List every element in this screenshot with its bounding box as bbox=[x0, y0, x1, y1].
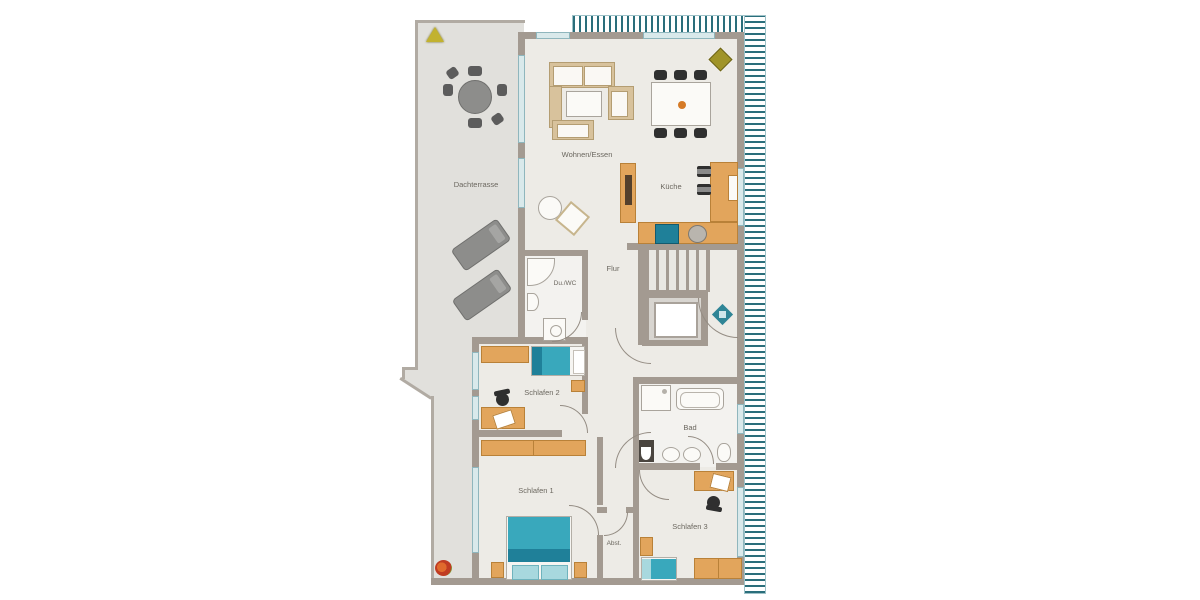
room-label-flur: Flur bbox=[607, 265, 620, 273]
terrace-door-s1 bbox=[472, 467, 479, 553]
desk-s2 bbox=[481, 407, 525, 429]
bathtub bbox=[676, 388, 724, 410]
wall-duwc-top bbox=[518, 250, 588, 256]
sofa-back bbox=[549, 62, 615, 88]
wall-s1-east-b bbox=[597, 535, 603, 583]
elevator-cab bbox=[649, 298, 701, 340]
bidet-bad bbox=[717, 443, 731, 462]
terrace-parapet-strip-left bbox=[431, 396, 434, 584]
window-living-west bbox=[518, 158, 525, 208]
toilet-bad bbox=[639, 440, 654, 462]
kitchen-cooktop bbox=[688, 225, 707, 243]
terrace-door-living bbox=[518, 55, 525, 143]
wall-bad-s3-b bbox=[716, 463, 744, 470]
wardrobe-s2-top bbox=[481, 346, 529, 363]
room-label-du-wc: Du./WC bbox=[554, 280, 577, 288]
coffee-table bbox=[566, 91, 602, 117]
bar-stool-2 bbox=[697, 184, 711, 195]
dining-chair-3 bbox=[694, 70, 707, 80]
bed-s1 bbox=[506, 516, 572, 580]
bed-s2 bbox=[531, 346, 585, 376]
dresser-s3 bbox=[640, 537, 653, 556]
sink-bad-2 bbox=[683, 447, 701, 462]
wardrobe-s1-top bbox=[481, 440, 586, 456]
window-dining-top bbox=[643, 32, 715, 39]
room-label-schlafen3: Schlafen 3 bbox=[672, 523, 707, 531]
room-label-wohnen-essen: Wohnen/Essen bbox=[562, 151, 613, 159]
staircase bbox=[644, 248, 710, 292]
dining-chair-4 bbox=[654, 128, 667, 138]
window-kitchen-east bbox=[737, 168, 744, 226]
armchair-right bbox=[608, 86, 634, 120]
window-s2-west-b bbox=[472, 396, 479, 420]
terrace-parapet-top bbox=[415, 20, 525, 23]
window-s3-east bbox=[737, 487, 744, 557]
terrace-chair-w bbox=[443, 84, 453, 96]
toilet-duwc bbox=[527, 293, 539, 311]
room-label-schlafen1: Schlafen 1 bbox=[518, 487, 553, 495]
sofa-bottom-seat bbox=[552, 120, 594, 140]
terrace-chair-s bbox=[468, 118, 482, 128]
terrace-parapet-left bbox=[415, 20, 418, 370]
wall-s1-east-a bbox=[597, 437, 603, 505]
bed-s3 bbox=[641, 557, 677, 581]
office-chair-s2 bbox=[494, 390, 512, 408]
desk-s3 bbox=[694, 471, 734, 491]
window-living-top bbox=[536, 32, 570, 39]
terrace-table bbox=[458, 80, 492, 114]
wall-bad-top bbox=[633, 377, 744, 384]
floor-plan: Dachterrasse Wohnen/Essen Küche Flur Du.… bbox=[0, 0, 1200, 600]
room-label-bad: Bad bbox=[683, 424, 696, 432]
hatch-border-right bbox=[744, 15, 766, 594]
room-label-dachterrasse: Dachterrasse bbox=[454, 181, 499, 189]
kitchen-sink bbox=[655, 224, 679, 244]
dining-chair-2 bbox=[674, 70, 687, 80]
office-chair-s3 bbox=[705, 494, 723, 512]
nightstand-s2 bbox=[571, 380, 585, 392]
room-label-schlafen2: Schlafen 2 bbox=[524, 389, 559, 397]
sink-bad-1 bbox=[662, 447, 680, 462]
room-label-kueche: Küche bbox=[660, 183, 681, 191]
bar-stool-1 bbox=[697, 166, 711, 177]
nightstand-s1-right bbox=[574, 562, 587, 578]
kitchen-counter-east bbox=[710, 162, 738, 222]
nightstand-s1-left bbox=[491, 562, 504, 578]
kitchen-tall-cabinet bbox=[620, 163, 636, 223]
flower-icon bbox=[435, 560, 452, 576]
wardrobe-s3 bbox=[694, 558, 742, 579]
window-s2-west-a bbox=[472, 352, 479, 390]
window-bad-east bbox=[737, 404, 744, 434]
wall-bedblock-top bbox=[472, 337, 588, 344]
room-label-abst: Abst. bbox=[607, 540, 622, 548]
shower-bad bbox=[641, 385, 671, 411]
wall-abst-east bbox=[633, 470, 639, 582]
wall-duwc-east bbox=[582, 250, 588, 320]
dining-table bbox=[651, 82, 711, 126]
terrace-chair-e bbox=[497, 84, 507, 96]
terrace-chair-n bbox=[468, 66, 482, 76]
plant-triangle-icon bbox=[426, 27, 444, 42]
dining-chair-5 bbox=[674, 128, 687, 138]
dining-chair-1 bbox=[654, 70, 667, 80]
dining-chair-6 bbox=[694, 128, 707, 138]
wall-s2-s1 bbox=[472, 430, 562, 437]
